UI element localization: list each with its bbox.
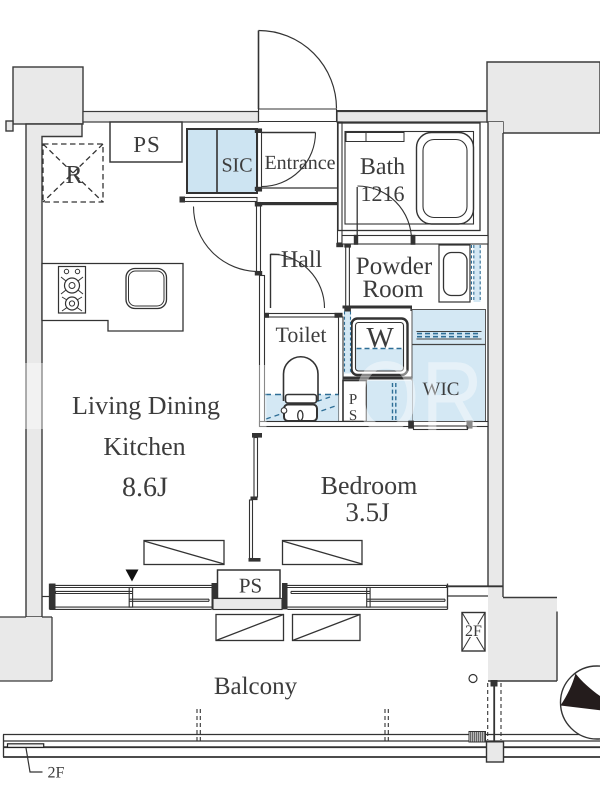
- svg-text:OR: OR: [353, 341, 485, 453]
- svg-text:1216: 1216: [361, 181, 405, 206]
- svg-text:Living Dining: Living Dining: [72, 391, 220, 420]
- svg-text:Bath: Bath: [360, 154, 405, 180]
- svg-text:8.6J: 8.6J: [122, 472, 168, 503]
- svg-text:2F: 2F: [48, 765, 65, 782]
- svg-text:Balcony: Balcony: [214, 673, 298, 700]
- svg-text:3.5J: 3.5J: [345, 497, 389, 527]
- svg-text:Kitchen: Kitchen: [103, 432, 185, 461]
- svg-text:PS: PS: [239, 574, 262, 598]
- svg-text:PS: PS: [133, 132, 161, 157]
- svg-text:Toilet: Toilet: [275, 322, 326, 347]
- svg-text:R: R: [65, 160, 83, 189]
- svg-text:2F: 2F: [465, 623, 482, 640]
- svg-text:SIC: SIC: [221, 155, 252, 177]
- svg-text:Hall: Hall: [281, 247, 323, 273]
- svg-text:Room: Room: [362, 276, 424, 303]
- svg-text:Bedroom: Bedroom: [321, 471, 418, 500]
